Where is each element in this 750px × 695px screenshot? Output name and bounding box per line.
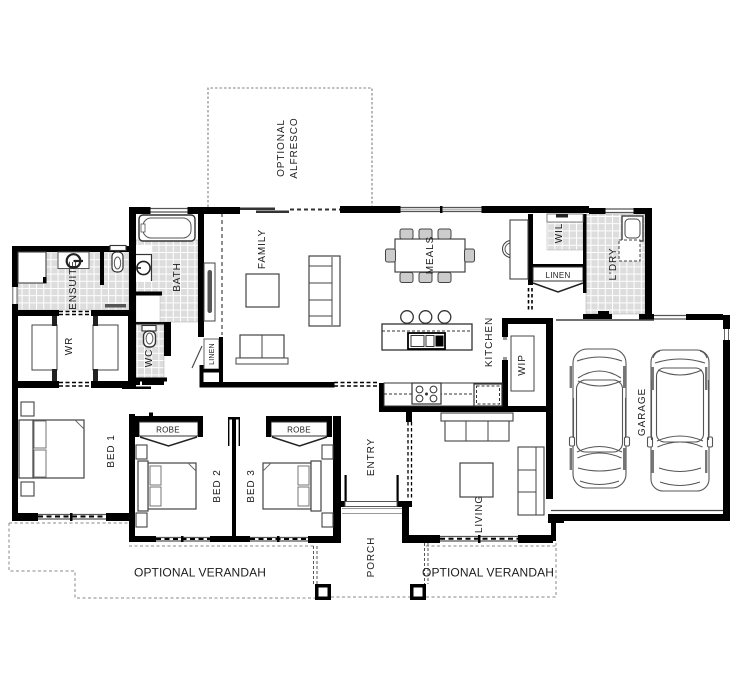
svg-text:ENTRY: ENTRY [366,438,377,476]
svg-text:LIVING: LIVING [474,495,485,533]
svg-text:KITCHEN: KITCHEN [484,317,495,367]
svg-text:L'DRY: L'DRY [608,248,619,281]
svg-text:BED 3: BED 3 [246,469,257,502]
svg-text:BATH: BATH [172,262,183,292]
svg-text:ALFRESCO: ALFRESCO [289,117,300,178]
svg-text:ROBE: ROBE [287,426,311,435]
svg-text:ROBE: ROBE [156,426,180,435]
svg-text:OPTIONAL: OPTIONAL [276,119,287,177]
svg-text:WC: WC [144,349,155,367]
svg-text:LINEN: LINEN [209,343,216,365]
svg-text:BED 2: BED 2 [212,469,223,502]
svg-text:WIL: WIL [554,223,565,243]
svg-text:BED 1: BED 1 [106,434,117,467]
svg-text:FAMILY: FAMILY [257,229,268,269]
svg-text:MEALS: MEALS [425,236,436,274]
svg-text:LINEN: LINEN [545,271,570,280]
svg-text:GARAGE: GARAGE [637,388,648,436]
svg-text:WR: WR [64,337,75,355]
svg-text:OPTIONAL VERANDAH: OPTIONAL VERANDAH [422,566,554,580]
svg-text:OPTIONAL VERANDAH: OPTIONAL VERANDAH [134,566,266,580]
svg-text:WIP: WIP [517,354,528,376]
svg-text:PORCH: PORCH [366,537,377,578]
svg-text:ENSUITE: ENSUITE [68,260,79,310]
